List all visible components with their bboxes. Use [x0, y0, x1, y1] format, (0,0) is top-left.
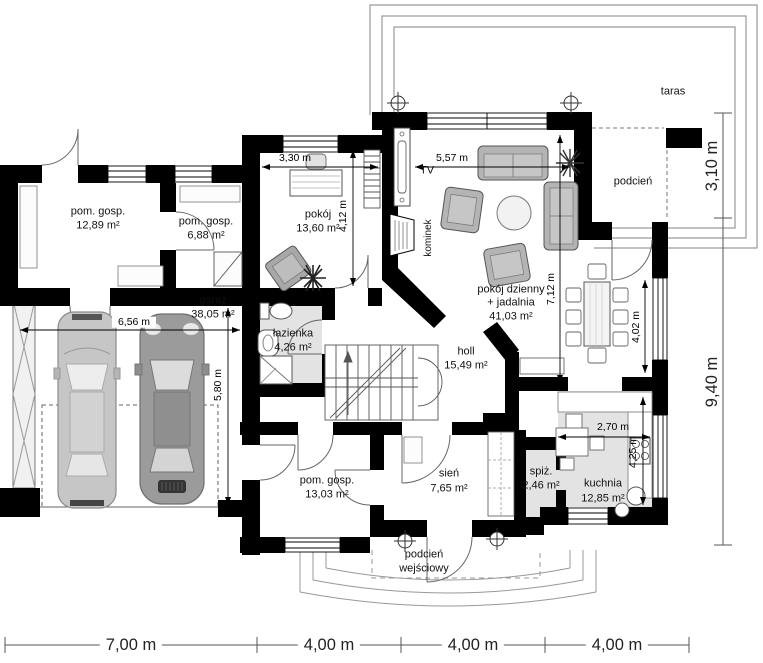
room-area-pokoj-dzienny: 41,03 m²: [489, 312, 532, 323]
floor-plan-drawing: [0, 0, 763, 663]
dining-furniture: [520, 264, 628, 374]
wardrobe: [488, 432, 514, 516]
room-area-pom-gosp-1: 12,89 m²: [76, 221, 119, 232]
room-label-pom-gosp-1: pom. gosp.: [71, 207, 125, 218]
podcien-wejsciowy-label-2: wejściowy: [399, 564, 449, 575]
dim-taras-depth: 3,10 m: [704, 135, 721, 197]
room-label-pom-gosp-3: pom. gosp.: [300, 476, 354, 487]
room-label-sien: sień: [439, 469, 459, 480]
room-area-holl: 15,49 m²: [444, 361, 487, 372]
room-area-kuchnia: 12,85 m²: [581, 494, 624, 505]
room-label-pom-gosp-2: pom. gosp.: [179, 217, 233, 228]
floor-plan: pom. gosp. 12,89 m² pom. gosp. 6,88 m² p…: [0, 0, 763, 663]
dim-salon-depth: 7,12 m: [546, 273, 557, 305]
room-area-lazienka: 4,26 m²: [274, 343, 311, 354]
podcien-wejsciowy-label-1: podcień: [405, 550, 444, 561]
dim-bottom-4: 4,00 m: [586, 637, 648, 654]
car-left: [54, 312, 120, 508]
room-label-kuchnia: kuchnia: [584, 479, 622, 490]
fireplace-label: kominek: [424, 219, 434, 256]
room-area-spiz: 2,46 m²: [522, 481, 559, 492]
room-label-lazienka: łazienka: [273, 329, 313, 340]
dim-east-depth: 9,40 m: [704, 351, 721, 413]
entrance-steps: [300, 550, 596, 606]
dim-jadalnia-depth: 4,02 m: [631, 311, 642, 343]
podcien-label: podcień: [614, 177, 653, 188]
dim-kuchnia-width: 2,70 m: [597, 422, 629, 433]
dim-kuchnia-depth: 4,25 m: [628, 436, 639, 468]
room-area-pokoj: 13,60 m²: [296, 224, 339, 235]
dim-salon-width: 5,57 m: [436, 153, 468, 164]
room-label-garaz: garaż: [199, 296, 227, 307]
room-area-pom-gosp-3: 13,03 m²: [305, 490, 348, 501]
tv-label: TV: [420, 166, 434, 177]
dim-pokoj-depth: 4,12 m: [338, 200, 349, 232]
room-label-jadalnia: + jadalnia: [487, 298, 534, 309]
dim-bottom-2: 4,00 m: [298, 637, 360, 654]
room-area-pom-gosp-2: 6,88 m²: [187, 231, 224, 242]
dim-bottom-3: 4,00 m: [442, 637, 504, 654]
room-area-garaz: 38,05 m²: [191, 310, 234, 321]
fireplace-icon: [390, 214, 414, 256]
dim-garaz-width: 6,56 m: [112, 317, 156, 328]
dim-pokoj-width: 3,30 m: [279, 153, 311, 164]
taras-label: taras: [661, 87, 685, 98]
room-label-holl: holl: [457, 347, 474, 358]
car-right: [135, 314, 209, 504]
room-area-sien: 7,65 m²: [430, 484, 467, 495]
dim-bottom-1: 7,00 m: [100, 637, 162, 654]
room-label-spiz: spiż.: [530, 467, 553, 478]
room-label-pokoj: pokój: [305, 210, 331, 221]
dim-garaz-depth: 5,80 m: [213, 369, 224, 401]
room-label-pokoj-dzienny: pokój dzienny: [477, 285, 544, 296]
tv-unit: [394, 128, 410, 206]
podcien-boundary: [592, 128, 667, 220]
